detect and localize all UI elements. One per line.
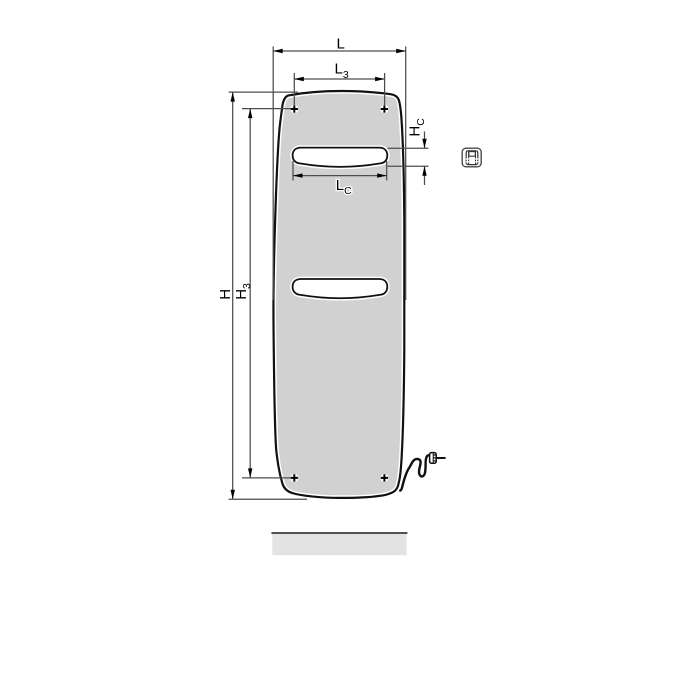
svg-text:L3: L3: [335, 61, 349, 81]
svg-text:H: H: [217, 289, 234, 300]
svg-text:L: L: [337, 36, 345, 53]
svg-text:HC: HC: [407, 118, 427, 137]
